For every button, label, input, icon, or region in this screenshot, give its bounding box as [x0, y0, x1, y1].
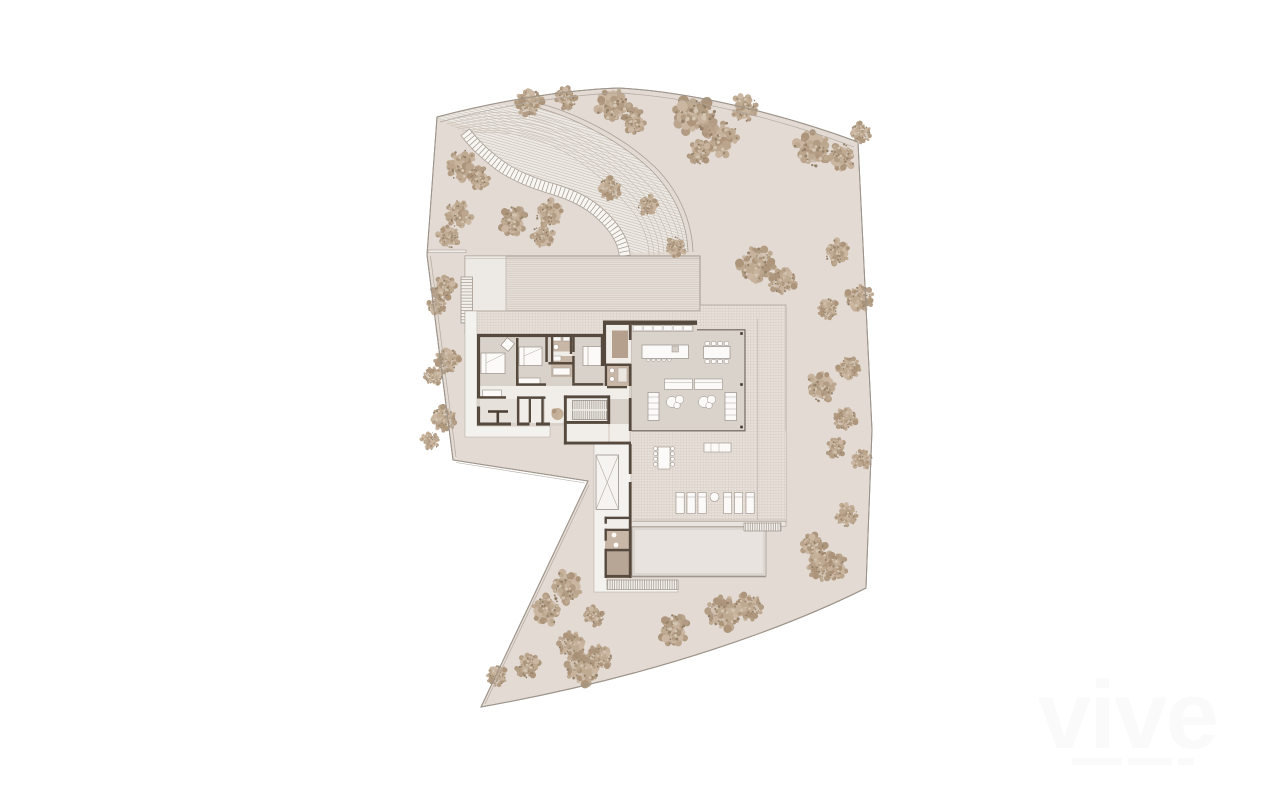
- svg-text:vive: vive: [1038, 662, 1217, 769]
